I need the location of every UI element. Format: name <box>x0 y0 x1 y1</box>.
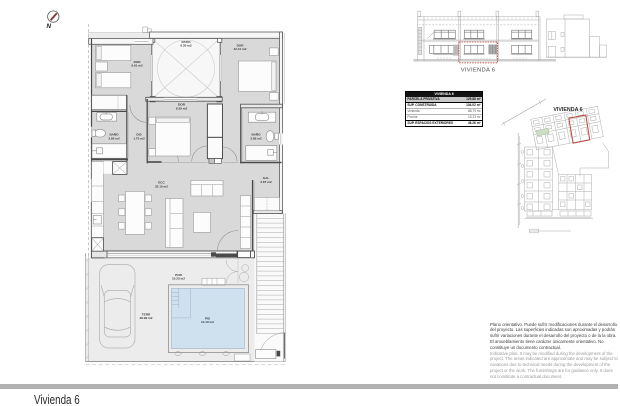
svg-text:38.99 m2: 38.99 m2 <box>139 316 152 320</box>
svg-text:32.10 m2: 32.10 m2 <box>155 184 168 188</box>
svg-text:VIVIENDA 6: VIVIENDA 6 <box>461 68 496 74</box>
svg-text:8.39 m2: 8.39 m2 <box>176 106 188 110</box>
svg-text:9.30 m2: 9.30 m2 <box>180 43 192 47</box>
svg-text:12.41 m2: 12.41 m2 <box>233 47 246 51</box>
svg-text:VIVIENDA 6: VIVIENDA 6 <box>553 107 582 113</box>
svg-text:15.23 m2: 15.23 m2 <box>172 277 185 281</box>
svg-text:N: N <box>47 23 52 30</box>
svg-text:10.19 m2: 10.19 m2 <box>201 320 214 324</box>
svg-text:1.70 m2: 1.70 m2 <box>133 136 145 140</box>
svg-text:3.88 m2: 3.88 m2 <box>250 136 262 140</box>
svg-text:9.61 m2: 9.61 m2 <box>131 64 143 68</box>
svg-text:3.66 m2: 3.66 m2 <box>108 136 120 140</box>
svg-text:2.87 m2: 2.87 m2 <box>260 180 272 184</box>
